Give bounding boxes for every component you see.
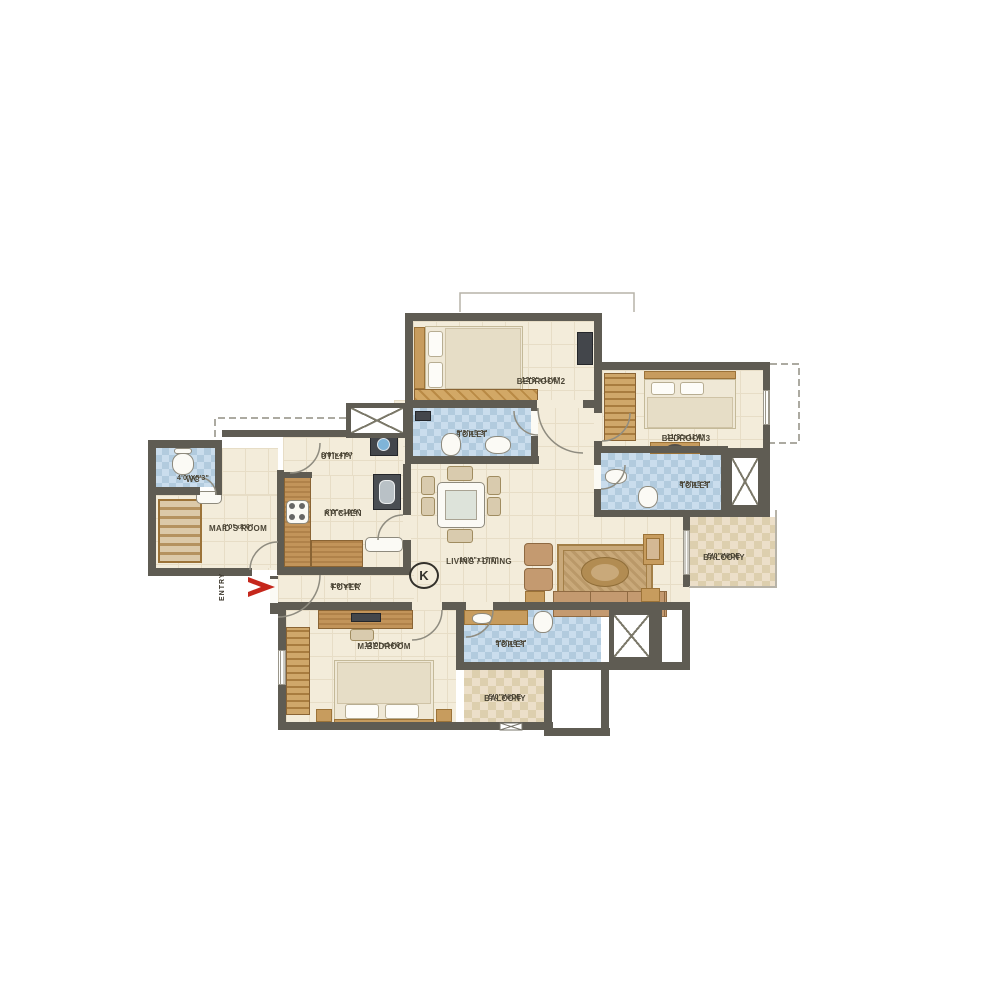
room-dims: 8'0"x8'0" — [222, 524, 253, 532]
wall-segment — [148, 487, 200, 495]
shaft-box — [609, 610, 654, 662]
mbed-side-table — [436, 709, 452, 722]
mbed-desk-tv — [351, 613, 381, 622]
room-dims: 12'0"x14'0" — [364, 642, 403, 650]
bed2-pillow — [428, 362, 443, 388]
sliding-door — [683, 530, 690, 575]
wall-segment — [278, 722, 553, 730]
maid-bed — [158, 499, 202, 563]
shaft-box — [346, 403, 408, 438]
entry-label: ENTRY — [219, 567, 232, 607]
door-opening — [403, 515, 411, 540]
mbed-pillow — [385, 704, 419, 719]
stove-burner — [299, 514, 305, 520]
toilet-bottom-basin — [472, 613, 492, 624]
dining-chair — [447, 466, 473, 481]
bed2-pillow — [428, 331, 443, 357]
dining-chair — [447, 529, 473, 543]
toilet-bottom-wc-pot — [533, 611, 553, 633]
wall-segment — [682, 602, 690, 670]
wall-segment — [763, 446, 770, 517]
wall-segment — [148, 440, 222, 448]
room-dims: 5'0"WIDE — [489, 694, 522, 702]
balcony-right-floor — [690, 517, 776, 587]
wall-segment — [405, 456, 539, 464]
room-dims: 5'0"WIDE — [708, 553, 741, 561]
compass-mark: K — [409, 562, 439, 589]
dining-chair — [421, 476, 435, 495]
room-dims: 8'0"x10'6" — [325, 509, 360, 517]
stove-burner — [289, 514, 295, 520]
door-opening — [412, 602, 442, 610]
room-dims: 8'0"x4'6" — [321, 452, 352, 460]
toilet-top-shower — [415, 411, 431, 421]
kitchen-counter-white — [365, 537, 403, 552]
mbed-side-table — [316, 709, 332, 722]
toilet-right-wc-pot — [638, 486, 658, 508]
bed2-headboard — [414, 327, 425, 389]
wall-segment — [594, 313, 602, 408]
wall-segment — [583, 400, 602, 408]
kitchen-sink — [379, 480, 395, 504]
wall-segment — [456, 662, 690, 670]
room-dims: 9'3"x6'3" — [495, 640, 526, 648]
toilet-right-basin — [605, 469, 627, 484]
dining-chair — [487, 497, 501, 516]
door-opening — [466, 602, 493, 610]
wall-segment — [594, 510, 763, 517]
wall-segment — [403, 464, 411, 515]
window — [763, 390, 770, 425]
wall-segment — [405, 313, 413, 408]
door-opening — [594, 465, 601, 489]
room-dims: 19'0"x17'7" — [459, 557, 498, 565]
mbed-pillow — [345, 704, 379, 719]
shaft-box — [727, 453, 763, 510]
floor-plan-page: ENTRY K BEDROOM2 12'3"x11'6" BEDROOM3 11… — [0, 0, 1000, 1000]
room-dims: 8'6"x5'0" — [330, 583, 361, 591]
wall-segment — [270, 603, 278, 614]
living-side-table — [641, 588, 660, 602]
wall-segment — [594, 362, 770, 370]
room-dims: 8'3"x5'3" — [456, 430, 487, 438]
stove-burner — [289, 503, 295, 509]
room-dims: 11'3"x11'0" — [667, 434, 706, 442]
door-opening — [594, 413, 602, 441]
wall-segment — [148, 568, 252, 576]
dining-table-top — [445, 490, 477, 520]
bed3-wardrobe — [604, 373, 636, 441]
wall-segment — [405, 313, 602, 321]
wall-segment — [763, 370, 770, 390]
kitchen-counter-bottom — [311, 540, 363, 567]
bed2-wardrobe-unit — [577, 332, 593, 365]
room-dims: 12'3"x11'6" — [521, 377, 560, 385]
room-dims: 4'0"X5'3" — [177, 475, 209, 483]
room-dims: 8'3"x5'3" — [679, 481, 710, 489]
wall-segment — [456, 602, 464, 670]
wall-segment — [282, 472, 312, 478]
wall-segment — [215, 440, 222, 495]
mbed-desk-chair — [350, 629, 374, 641]
wc-pot — [172, 453, 194, 475]
bed3-headboard — [644, 371, 736, 379]
toilet-top-basin — [485, 436, 511, 454]
wall-segment — [278, 567, 411, 575]
window — [278, 650, 286, 685]
bed2-blanket — [445, 328, 521, 389]
entry-arrow-notch — [248, 582, 261, 592]
bed3-blanket — [647, 397, 733, 428]
living-armchair — [524, 568, 553, 591]
wall-segment — [544, 670, 552, 730]
living-rug-oval-inner — [591, 564, 619, 581]
mbed-blanket — [337, 662, 431, 704]
door-opening — [537, 400, 583, 408]
door-opening — [531, 411, 538, 436]
stove-burner — [299, 503, 305, 509]
wall-segment — [277, 470, 284, 575]
washing-machine-door — [377, 438, 390, 451]
bed3-pillow — [680, 382, 704, 395]
wall-segment — [148, 440, 156, 576]
wall-segment — [405, 400, 538, 408]
bed3-pillow — [651, 382, 675, 395]
living-bench-cushion — [646, 538, 660, 560]
dining-chair — [487, 476, 501, 495]
mbed-wardrobe — [286, 627, 310, 715]
living-armchair — [524, 543, 553, 566]
floor-plan: ENTRY K BEDROOM2 12'3"x11'6" BEDROOM3 11… — [148, 285, 808, 750]
dining-chair — [421, 497, 435, 516]
wall-segment — [654, 610, 662, 662]
wall-segment — [601, 670, 609, 736]
